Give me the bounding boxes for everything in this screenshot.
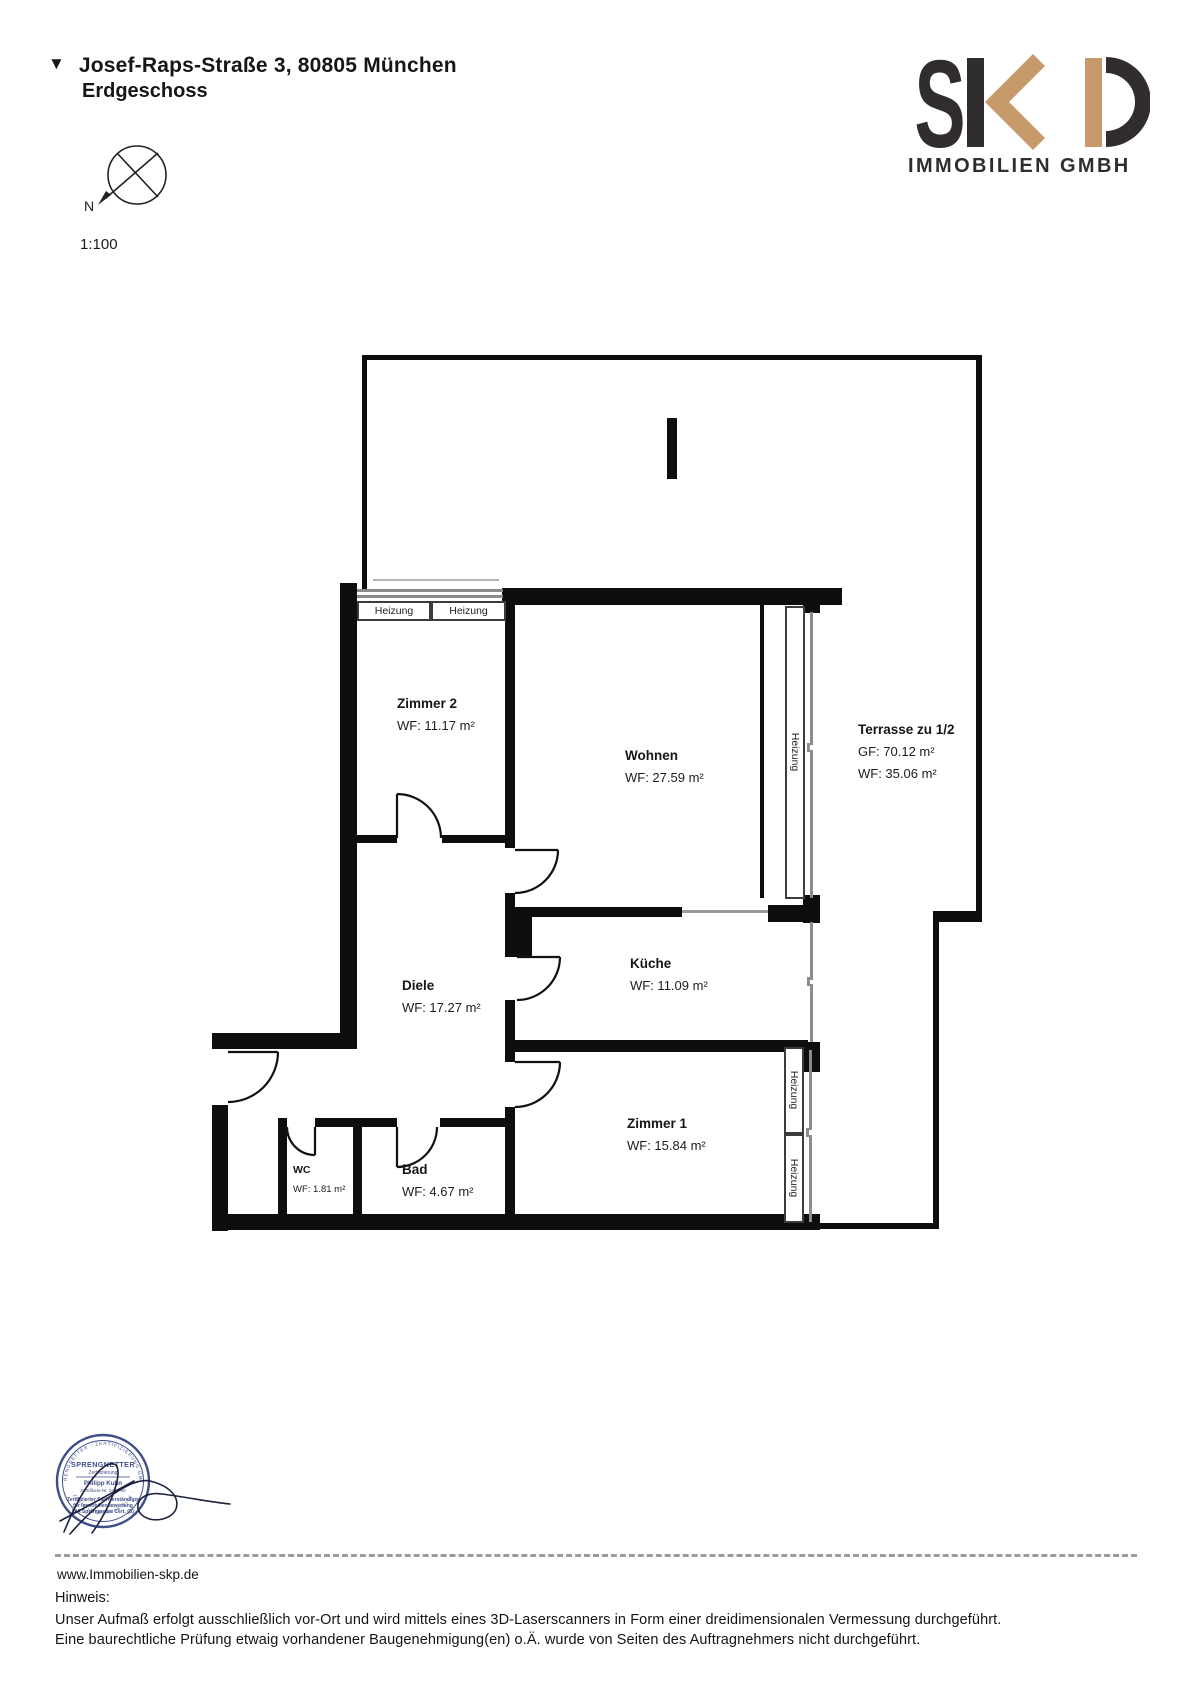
room-area: WF: 11.17 m² (397, 718, 475, 733)
room-label-wohnen: Wohnen WF: 27.59 m² (625, 748, 704, 785)
door-zimmer2 (397, 794, 441, 838)
room-label-wc: WC WF: 1.81 m² (293, 1163, 345, 1197)
room-label-terrasse: Terrasse zu 1/2 GF: 70.12 m² WF: 35.06 m… (858, 722, 955, 781)
website-url: www.Immobilien-skp.de (57, 1567, 199, 1582)
door-wohnen (515, 850, 558, 893)
radiator-label: Heizung (787, 1148, 801, 1208)
windows (357, 579, 813, 1222)
room-label-kueche: Küche WF: 11.09 m² (630, 956, 708, 993)
room-area: WF: 11.09 m² (630, 978, 708, 993)
terrace-divider-wall (667, 418, 677, 479)
room-name: Bad (402, 1162, 474, 1177)
room-area: WF: 35.06 m² (858, 766, 955, 781)
door-bad (397, 1127, 437, 1167)
room-name: WC (293, 1163, 345, 1178)
room-area: WF: 1.81 m² (293, 1182, 345, 1197)
footer-divider (55, 1554, 1137, 1557)
room-label-zimmer2: Zimmer 2 WF: 11.17 m² (397, 696, 475, 733)
hinweis-label: Hinweis: (55, 1590, 110, 1606)
door-zimmer1 (515, 1062, 560, 1107)
door-kueche (517, 957, 560, 1000)
room-name: Terrasse zu 1/2 (858, 722, 955, 737)
floorplan-page: ▼ Josef-Raps-Straße 3, 80805 München Erd… (0, 0, 1191, 1684)
radiator-label: Heizung (432, 604, 505, 618)
room-area: WF: 17.27 m² (402, 1000, 481, 1015)
room-label-zimmer1: Zimmer 1 WF: 15.84 m² (627, 1116, 706, 1153)
room-area: WF: 15.84 m² (627, 1138, 706, 1153)
room-label-bad: Bad WF: 4.67 m² (402, 1162, 474, 1199)
door-wc (287, 1127, 315, 1155)
room-area: WF: 4.67 m² (402, 1184, 474, 1199)
room-area: GF: 70.12 m² (858, 744, 955, 759)
certification-stamp: SPRENGNETTER · ZERTIFIZIERUNG GMBH · ZER… (48, 1426, 308, 1551)
room-name: Zimmer 2 (397, 696, 475, 711)
radiator-label: Heizung (788, 722, 802, 782)
note-line-2: Eine baurechtliche Prüfung etwaig vorhan… (55, 1632, 920, 1648)
open-boundary-line (682, 910, 768, 913)
walls (212, 583, 842, 1231)
radiator-label: Heizung (787, 1060, 801, 1120)
radiator-label: Heizung (358, 604, 430, 618)
door-entry (228, 1052, 278, 1102)
room-name: Diele (402, 978, 481, 993)
room-name: Küche (630, 956, 708, 971)
room-name: Wohnen (625, 748, 704, 763)
room-name: Zimmer 1 (627, 1116, 706, 1131)
room-area: WF: 27.59 m² (625, 770, 704, 785)
note-line-1: Unser Aufmaß erfolgt ausschließlich vor-… (55, 1612, 1001, 1628)
room-label-diele: Diele WF: 17.27 m² (402, 978, 481, 1015)
stamp-brand-sub: Zertifizierung (89, 1470, 118, 1476)
terrace-outline (362, 355, 982, 1229)
